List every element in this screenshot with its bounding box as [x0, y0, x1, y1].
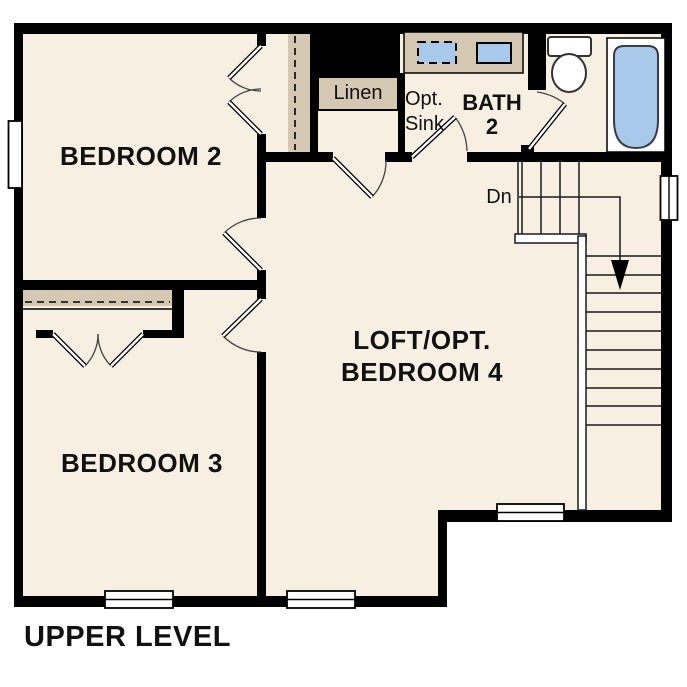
- bedroom3-closet-shelf: [23, 290, 172, 306]
- wall-segment: [467, 152, 661, 162]
- wall-segment: [385, 152, 412, 162]
- bedroom3-label: BEDROOM 3: [61, 447, 223, 479]
- wall-segment: [398, 73, 405, 162]
- bath2-label: BATH 2: [462, 91, 521, 139]
- bedroom2-closet-shelf: [288, 34, 310, 152]
- wall-chase: [310, 23, 400, 77]
- floor-plan: BEDROOM 2 BEDROOM 3 LOFT/OPT. BEDROOM 4 …: [0, 0, 687, 687]
- wall-segment: [14, 280, 266, 290]
- opt-sink-label: Opt. Sink: [405, 87, 444, 137]
- stair-landing-edge: [515, 234, 586, 243]
- wall-segment: [528, 23, 546, 90]
- loft-label: LOFT/OPT. BEDROOM 4: [341, 324, 503, 388]
- toilet-bowl: [552, 54, 586, 92]
- stairs-down-label: Dn: [486, 185, 512, 209]
- wall-segment: [257, 134, 266, 218]
- wall-segment: [14, 23, 23, 607]
- wall-segment: [14, 596, 446, 607]
- wall-segment: [172, 280, 184, 338]
- bedroom2-label: BEDROOM 2: [60, 140, 222, 172]
- optional-sink: [418, 42, 456, 63]
- linen-label: Linen: [334, 81, 383, 105]
- wall-segment: [36, 330, 53, 338]
- wall-segment: [257, 352, 266, 598]
- wall-segment: [438, 510, 447, 607]
- wall-segment: [257, 152, 333, 162]
- page-title: UPPER LEVEL: [24, 620, 231, 655]
- stair-half-wall: [578, 236, 586, 510]
- wall-segment: [143, 330, 173, 338]
- sink: [477, 43, 511, 63]
- wall-segment: [257, 30, 266, 46]
- bathtub: [614, 46, 658, 148]
- window: [9, 121, 23, 188]
